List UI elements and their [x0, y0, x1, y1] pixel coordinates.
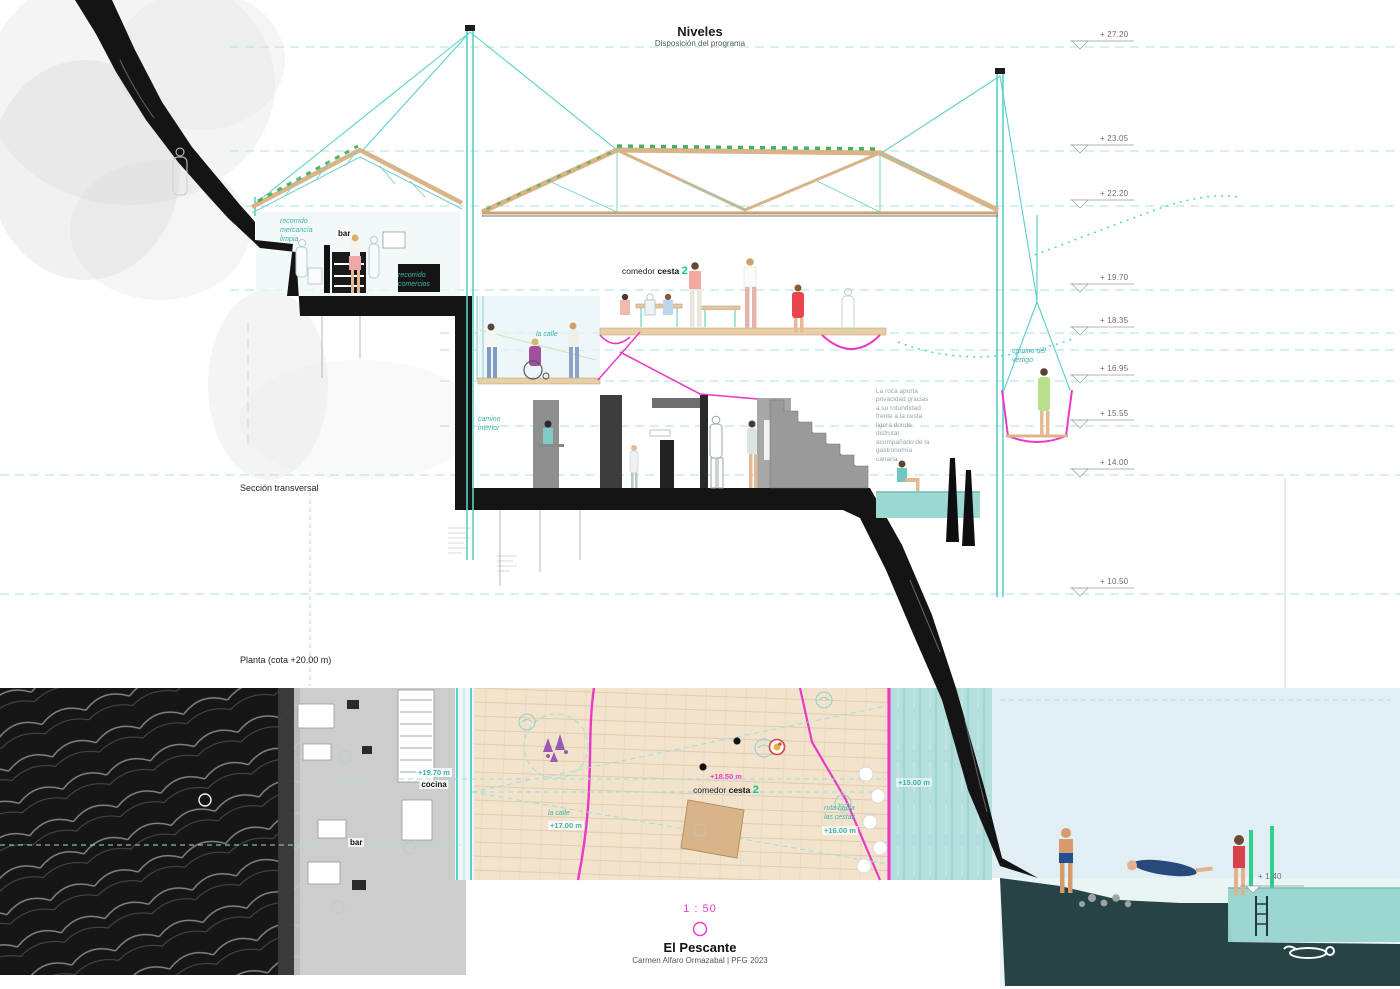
label-mar-level: + 1.40	[1258, 872, 1282, 881]
figure-ghost-man	[710, 416, 723, 488]
label-camino-interior: camino interior	[478, 416, 520, 434]
page-subtitle: Disposición del programa	[655, 39, 745, 48]
label-ruta-cestas: ruta hacia las cestas	[824, 805, 864, 823]
section-label: Sección transversal	[240, 483, 319, 493]
label-cocina: cocina	[419, 780, 448, 789]
label-recorrido-comercios: recorrido comercios	[398, 272, 458, 290]
plan-rock-texture	[0, 688, 300, 975]
dotted-curves	[898, 196, 1238, 357]
label-recorrido-mercancia: recorrido mercancía limpia	[280, 218, 328, 244]
drawing-canvas: Niveles Disposición del programa + 27.20…	[0, 0, 1400, 989]
level-value: + 16.95	[1100, 364, 1128, 373]
scale-label: 1 : 50	[683, 903, 717, 915]
lower-level	[533, 395, 868, 488]
plan-table	[681, 800, 744, 858]
project-credits: Carmen Alfaro Ormazabal | PFG 2023	[632, 956, 767, 965]
level-value: + 10.50	[1100, 577, 1128, 586]
figure-white-shirt	[744, 258, 757, 328]
label-comedor-cesta-section: comedor cesta 2	[622, 265, 688, 277]
figure-red-dress	[792, 285, 804, 333]
figure-bun-woman	[747, 421, 758, 489]
label-ruta-level: +16.00 m	[822, 826, 858, 835]
scale-circle-icon	[694, 923, 707, 936]
annotation-roca: La roca aporta privacidad gracias a su r…	[876, 388, 932, 464]
label-bar-section: bar	[336, 229, 352, 238]
label-camino-vertigo: camino del vértigo	[1012, 348, 1064, 366]
label-comedor-level: +18.50 m	[710, 772, 742, 781]
label-calle-level: +17.00 m	[548, 821, 584, 830]
level-value: + 15.55	[1100, 409, 1128, 418]
label-bar-plan: bar	[348, 838, 364, 847]
level-value: + 18.35	[1100, 316, 1128, 325]
plan-sky	[992, 688, 1400, 878]
label-comedor-cesta-plan: comedor cesta 2	[693, 784, 759, 796]
figure-child	[630, 445, 638, 488]
cesta-word: cesta	[729, 785, 751, 795]
label-agua-level: +15.00 m	[896, 778, 932, 787]
page-title: Niveles	[677, 24, 723, 39]
project-title: El Pescante	[664, 940, 737, 955]
plan-wood-floor	[474, 688, 888, 880]
figure-pool-sitter	[897, 461, 920, 492]
plan-label: Planta (cota +20.00 m)	[240, 655, 331, 665]
label-cocina-level: +19.70 m	[416, 768, 452, 777]
bright-dish-icon	[770, 740, 785, 755]
cesta-word: cesta	[657, 266, 679, 276]
level-value: + 27.20	[1100, 30, 1128, 39]
green-post	[1249, 830, 1253, 888]
comedor-word: comedor	[622, 266, 655, 276]
hanging-basket	[1002, 215, 1072, 442]
level-value: + 22.20	[1100, 189, 1128, 198]
label-la-calle-section: la calle	[536, 331, 558, 340]
level-value: + 23.05	[1100, 134, 1128, 143]
comedor-word: comedor	[693, 785, 726, 795]
cesta-number: 2	[682, 265, 688, 277]
basket-outline	[822, 335, 880, 349]
level-value: + 14.00	[1100, 458, 1128, 467]
level-value: + 19.70	[1100, 273, 1128, 282]
figure-pink-shirt	[689, 262, 702, 328]
drawing-artwork	[0, 0, 1400, 989]
label-la-calle-plan: la calle	[548, 810, 570, 819]
cesta-number: 2	[753, 784, 759, 796]
